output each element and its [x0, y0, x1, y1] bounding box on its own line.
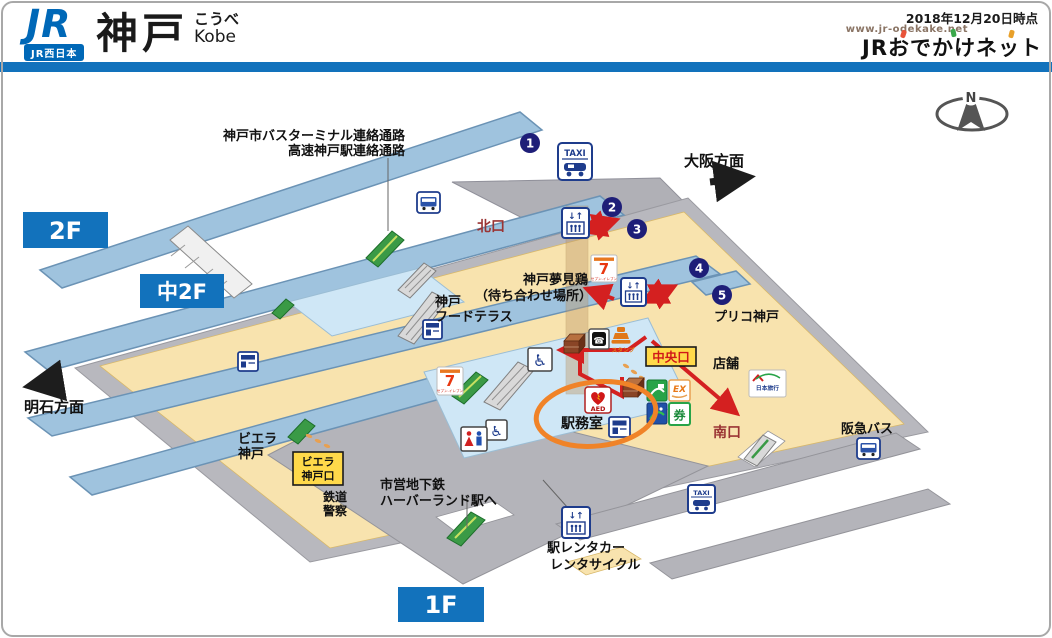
elevator-icon-north: ↓↑ — [562, 208, 589, 238]
svg-text:スタンプ: スタンプ — [611, 346, 634, 354]
page-header: JR JR西日本 神戸 こうべ Kobe 2018年12月20日時点 www.j… — [0, 0, 1052, 62]
public-phone-icon: ☎ — [589, 329, 609, 349]
tenpo-label: 店舗 — [713, 356, 739, 372]
aed-icon: AED — [585, 387, 611, 413]
station-title: 神戸 — [96, 0, 188, 61]
svg-text:♿: ♿ — [490, 424, 503, 440]
bus-icon-north — [417, 192, 440, 213]
akashi-arrow — [36, 381, 60, 385]
north-gate-label: 北口 — [477, 219, 505, 235]
food-terrace-label-2: フードテラス — [435, 310, 513, 325]
svg-text:4: 4 — [695, 262, 703, 276]
taxi-icon-south: TAXI — [688, 485, 715, 513]
svg-text:1F: 1F — [424, 591, 457, 619]
viera-gate-sign: ビエラ 神戸口 — [293, 452, 343, 485]
nippon-travel-logo: 日本旅行 — [749, 370, 786, 397]
ticket-machine-icon-west — [238, 352, 258, 371]
seven-eleven-icon-north: 7 セブン-イレブン — [591, 255, 618, 282]
central-gate-sign: 中央口 — [646, 347, 696, 366]
jr-logo: JR — [26, 2, 71, 46]
svg-text:EX: EX — [673, 385, 687, 395]
platform-number-4: 4 — [689, 258, 709, 278]
hankyu-bus-label: 阪急バス — [841, 421, 893, 437]
direction-akashi: 明石方面 — [24, 398, 84, 416]
police-label-2: 警察 — [322, 503, 348, 518]
svg-text:中央口: 中央口 — [652, 350, 690, 365]
subway-label-2: ハーバーランド駅へ — [380, 494, 497, 509]
svg-text:日本旅行: 日本旅行 — [756, 384, 779, 392]
platform-number-3: 3 — [627, 219, 647, 239]
viera-label-1: ビエラ — [238, 431, 277, 447]
ex-reservation-icon: EX — [669, 380, 690, 401]
platform-number-5: 5 — [712, 285, 732, 305]
wheelchair-icon-south: ♿ — [486, 420, 507, 440]
corridor-label-2: 高速神戸駅連絡通路 — [288, 143, 406, 159]
svg-text:↓↑: ↓↑ — [568, 512, 583, 522]
direction-osaka: 大阪方面 — [684, 152, 744, 170]
rental-label-2: レンタサイクル — [550, 558, 640, 573]
platform-number-2: 2 — [602, 197, 622, 217]
svg-text:TAXI: TAXI — [564, 149, 585, 159]
wheelchair-icon-central: ♿ — [528, 348, 552, 371]
elevator-icon-central: ↓↑ — [621, 278, 646, 306]
svg-text:券: 券 — [672, 408, 686, 423]
svg-text:1: 1 — [526, 137, 534, 151]
header-divider-bar — [0, 62, 1052, 72]
rental-label-1: 駅レンタカー — [546, 541, 625, 556]
svg-text:7: 7 — [445, 372, 455, 390]
svg-text:AED: AED — [591, 405, 606, 413]
coin-locker-icon-north — [564, 334, 585, 353]
taxi-icon-north: TAXI — [558, 143, 592, 180]
station-romaji: Kobe — [194, 27, 236, 47]
toilet-icon — [461, 427, 487, 451]
floor-label-m2f: 中2F — [140, 274, 224, 308]
svg-text:♿: ♿ — [533, 351, 547, 370]
ticket-vending-icon: 券 — [669, 403, 690, 425]
svg-text:セブン-イレブン: セブン-イレブン — [591, 276, 618, 281]
svg-text:2F: 2F — [49, 217, 82, 245]
elevator-icon-south: ↓↑ — [562, 507, 590, 538]
ticket-machine-icon-office — [609, 417, 630, 437]
station-kana: こうべ — [194, 8, 239, 29]
viera-label-2: 神戸 — [238, 446, 264, 462]
police-label-1: 鉄道 — [323, 489, 347, 504]
platform-number-1: 1 — [520, 133, 540, 153]
station-map: TAXI TAXI ↓↑ ↓↑ — [0, 0, 1052, 638]
compass-north: N — [937, 89, 1007, 132]
osaka-arrow — [710, 178, 742, 182]
svg-text:2: 2 — [608, 201, 616, 215]
seven-eleven-icon-central: 7 セブン-イレブン — [437, 367, 464, 395]
svg-text:中2F: 中2F — [157, 280, 207, 304]
south-gate-label: 南口 — [713, 424, 741, 441]
svg-text:7: 7 — [599, 260, 609, 278]
bus-icon-hankyu — [857, 438, 880, 459]
food-terrace-label-1: 神戸 — [435, 294, 461, 310]
station-office-label: 駅務室 — [561, 415, 603, 432]
svg-text:↓↑: ↓↑ — [568, 212, 583, 222]
meeting-spot-label-1: 神戸夢見鶏 — [523, 272, 588, 288]
meeting-spot-label-2: （待ち合わせ場所） — [475, 288, 592, 304]
svg-text:セブン-イレブン: セブン-イレブン — [437, 388, 464, 393]
floor-label-2f: 2F — [23, 212, 108, 248]
subway-label-1: 市営地下鉄 — [380, 477, 445, 493]
svg-text:5: 5 — [718, 289, 726, 303]
compass-n-label: N — [966, 91, 977, 106]
svg-text:3: 3 — [633, 223, 641, 237]
svg-text:TAXI: TAXI — [693, 489, 709, 497]
svg-text:神戸口: 神戸口 — [302, 469, 335, 483]
svg-text:☎: ☎ — [593, 337, 604, 347]
jr-west-badge: JR西日本 — [24, 44, 84, 61]
svg-text:↓↑: ↓↑ — [626, 282, 640, 292]
puriko-label: プリコ神戸 — [714, 309, 779, 325]
floor-label-1f: 1F — [398, 587, 484, 622]
corridor-label-1: 神戸市バスターミナル連絡通路 — [223, 128, 406, 144]
svg-text:ビエラ: ビエラ — [302, 455, 335, 469]
